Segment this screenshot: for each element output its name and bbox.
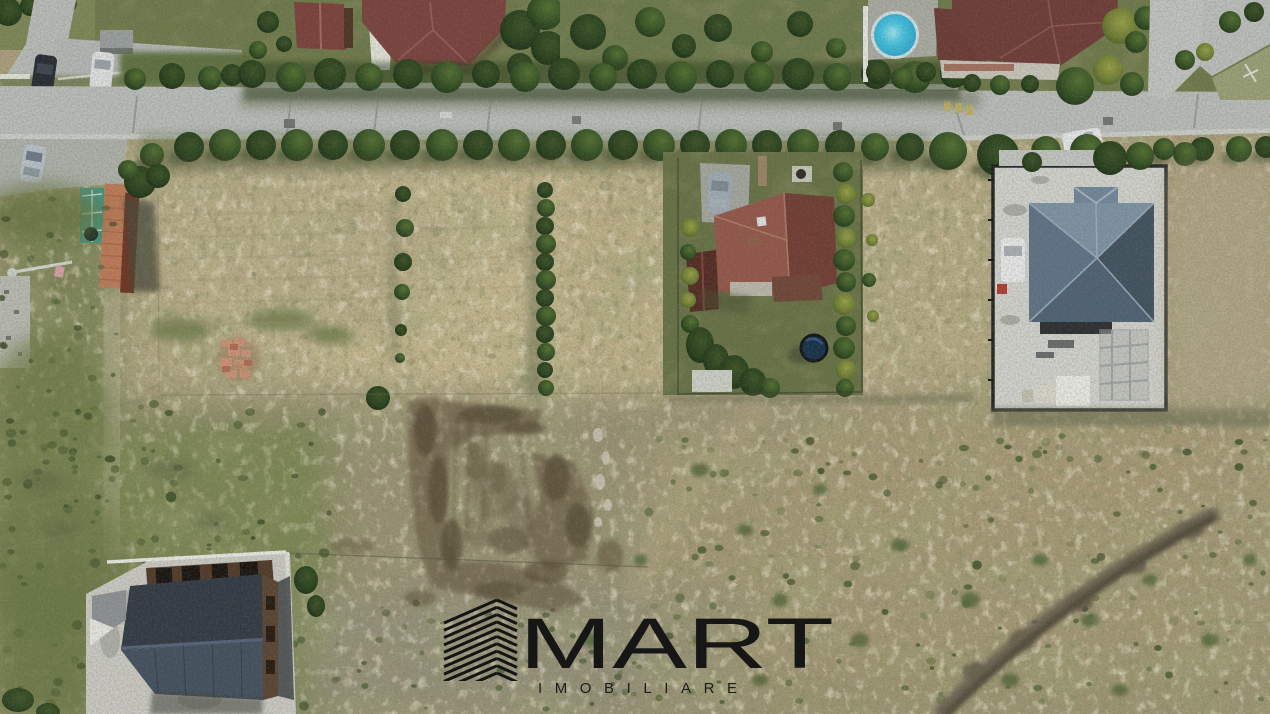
- svg-text:MART: MART: [519, 605, 834, 684]
